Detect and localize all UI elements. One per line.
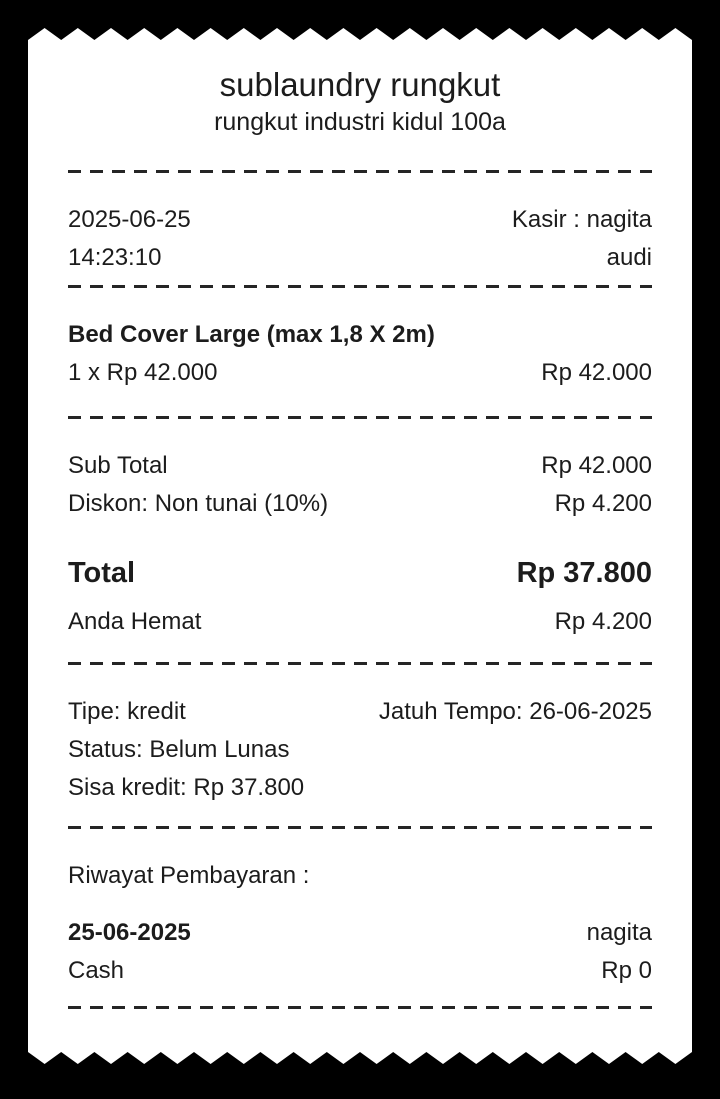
dashed-divider (68, 662, 652, 665)
cashier-name: Kasir : nagita (512, 201, 652, 239)
credit-type-row: Tipe: kredit Jatuh Tempo: 26-06-2025 (68, 693, 652, 731)
store-name: sublaundry rungkut (68, 64, 652, 106)
item-detail-row: 1 x Rp 42.000 Rp 42.000 (68, 354, 652, 392)
total-label: Total (68, 551, 135, 595)
subtotal-row: Sub Total Rp 42.000 (68, 447, 652, 485)
payment-entry-row-2: Cash Rp 0 (68, 952, 652, 990)
payment-history-title-row: Riwayat Pembayaran : (68, 857, 652, 895)
payment-history-title: Riwayat Pembayaran : (68, 857, 309, 895)
payment-method: Cash (68, 952, 124, 990)
meta-row-2: 14:23:10 audi (68, 239, 652, 277)
discount-row: Diskon: Non tunai (10%) Rp 4.200 (68, 485, 652, 523)
discount-label: Diskon: Non tunai (10%) (68, 485, 328, 523)
item-name-row: Bed Cover Large (max 1,8 X 2m) (68, 316, 652, 354)
discount-value: Rp 4.200 (555, 485, 652, 523)
subtotal-label: Sub Total (68, 447, 168, 485)
item-name: Bed Cover Large (max 1,8 X 2m) (68, 316, 435, 354)
item-qty-price: 1 x Rp 42.000 (68, 354, 217, 392)
payment-entry-row-1: 25-06-2025 nagita (68, 914, 652, 952)
dashed-divider (68, 826, 652, 829)
credit-remaining-row: Sisa kredit: Rp 37.800 (68, 769, 652, 807)
dashed-divider (68, 416, 652, 419)
receipt: sublaundry rungkut rungkut industri kidu… (28, 28, 692, 1064)
savings-label: Anda Hemat (68, 603, 201, 641)
total-value: Rp 37.800 (517, 551, 652, 595)
total-row: Total Rp 37.800 (68, 551, 652, 595)
credit-status: Status: Belum Lunas (68, 731, 289, 769)
transaction-date: 2025-06-25 (68, 201, 191, 239)
store-address: rungkut industri kidul 100a (68, 106, 652, 138)
meta-row-1: 2025-06-25 Kasir : nagita (68, 201, 652, 239)
item-amount: Rp 42.000 (541, 354, 652, 392)
dashed-divider (68, 285, 652, 288)
dashed-divider (68, 1006, 652, 1009)
dashed-divider (68, 170, 652, 173)
receipt-body: sublaundry rungkut rungkut industri kidu… (28, 40, 692, 1052)
savings-row: Anda Hemat Rp 4.200 (68, 603, 652, 641)
torn-edge-top-icon (28, 28, 692, 40)
credit-due-date: Jatuh Tempo: 26-06-2025 (379, 693, 652, 731)
transaction-time: 14:23:10 (68, 239, 161, 277)
payment-by: nagita (587, 914, 652, 952)
torn-edge-bottom-icon (28, 1052, 692, 1064)
payment-amount: Rp 0 (601, 952, 652, 990)
savings-value: Rp 4.200 (555, 603, 652, 641)
credit-type: Tipe: kredit (68, 693, 186, 731)
payment-date: 25-06-2025 (68, 914, 191, 952)
credit-status-row: Status: Belum Lunas (68, 731, 652, 769)
subtotal-value: Rp 42.000 (541, 447, 652, 485)
cashier-name-line2: audi (607, 239, 652, 277)
credit-remaining: Sisa kredit: Rp 37.800 (68, 769, 304, 807)
